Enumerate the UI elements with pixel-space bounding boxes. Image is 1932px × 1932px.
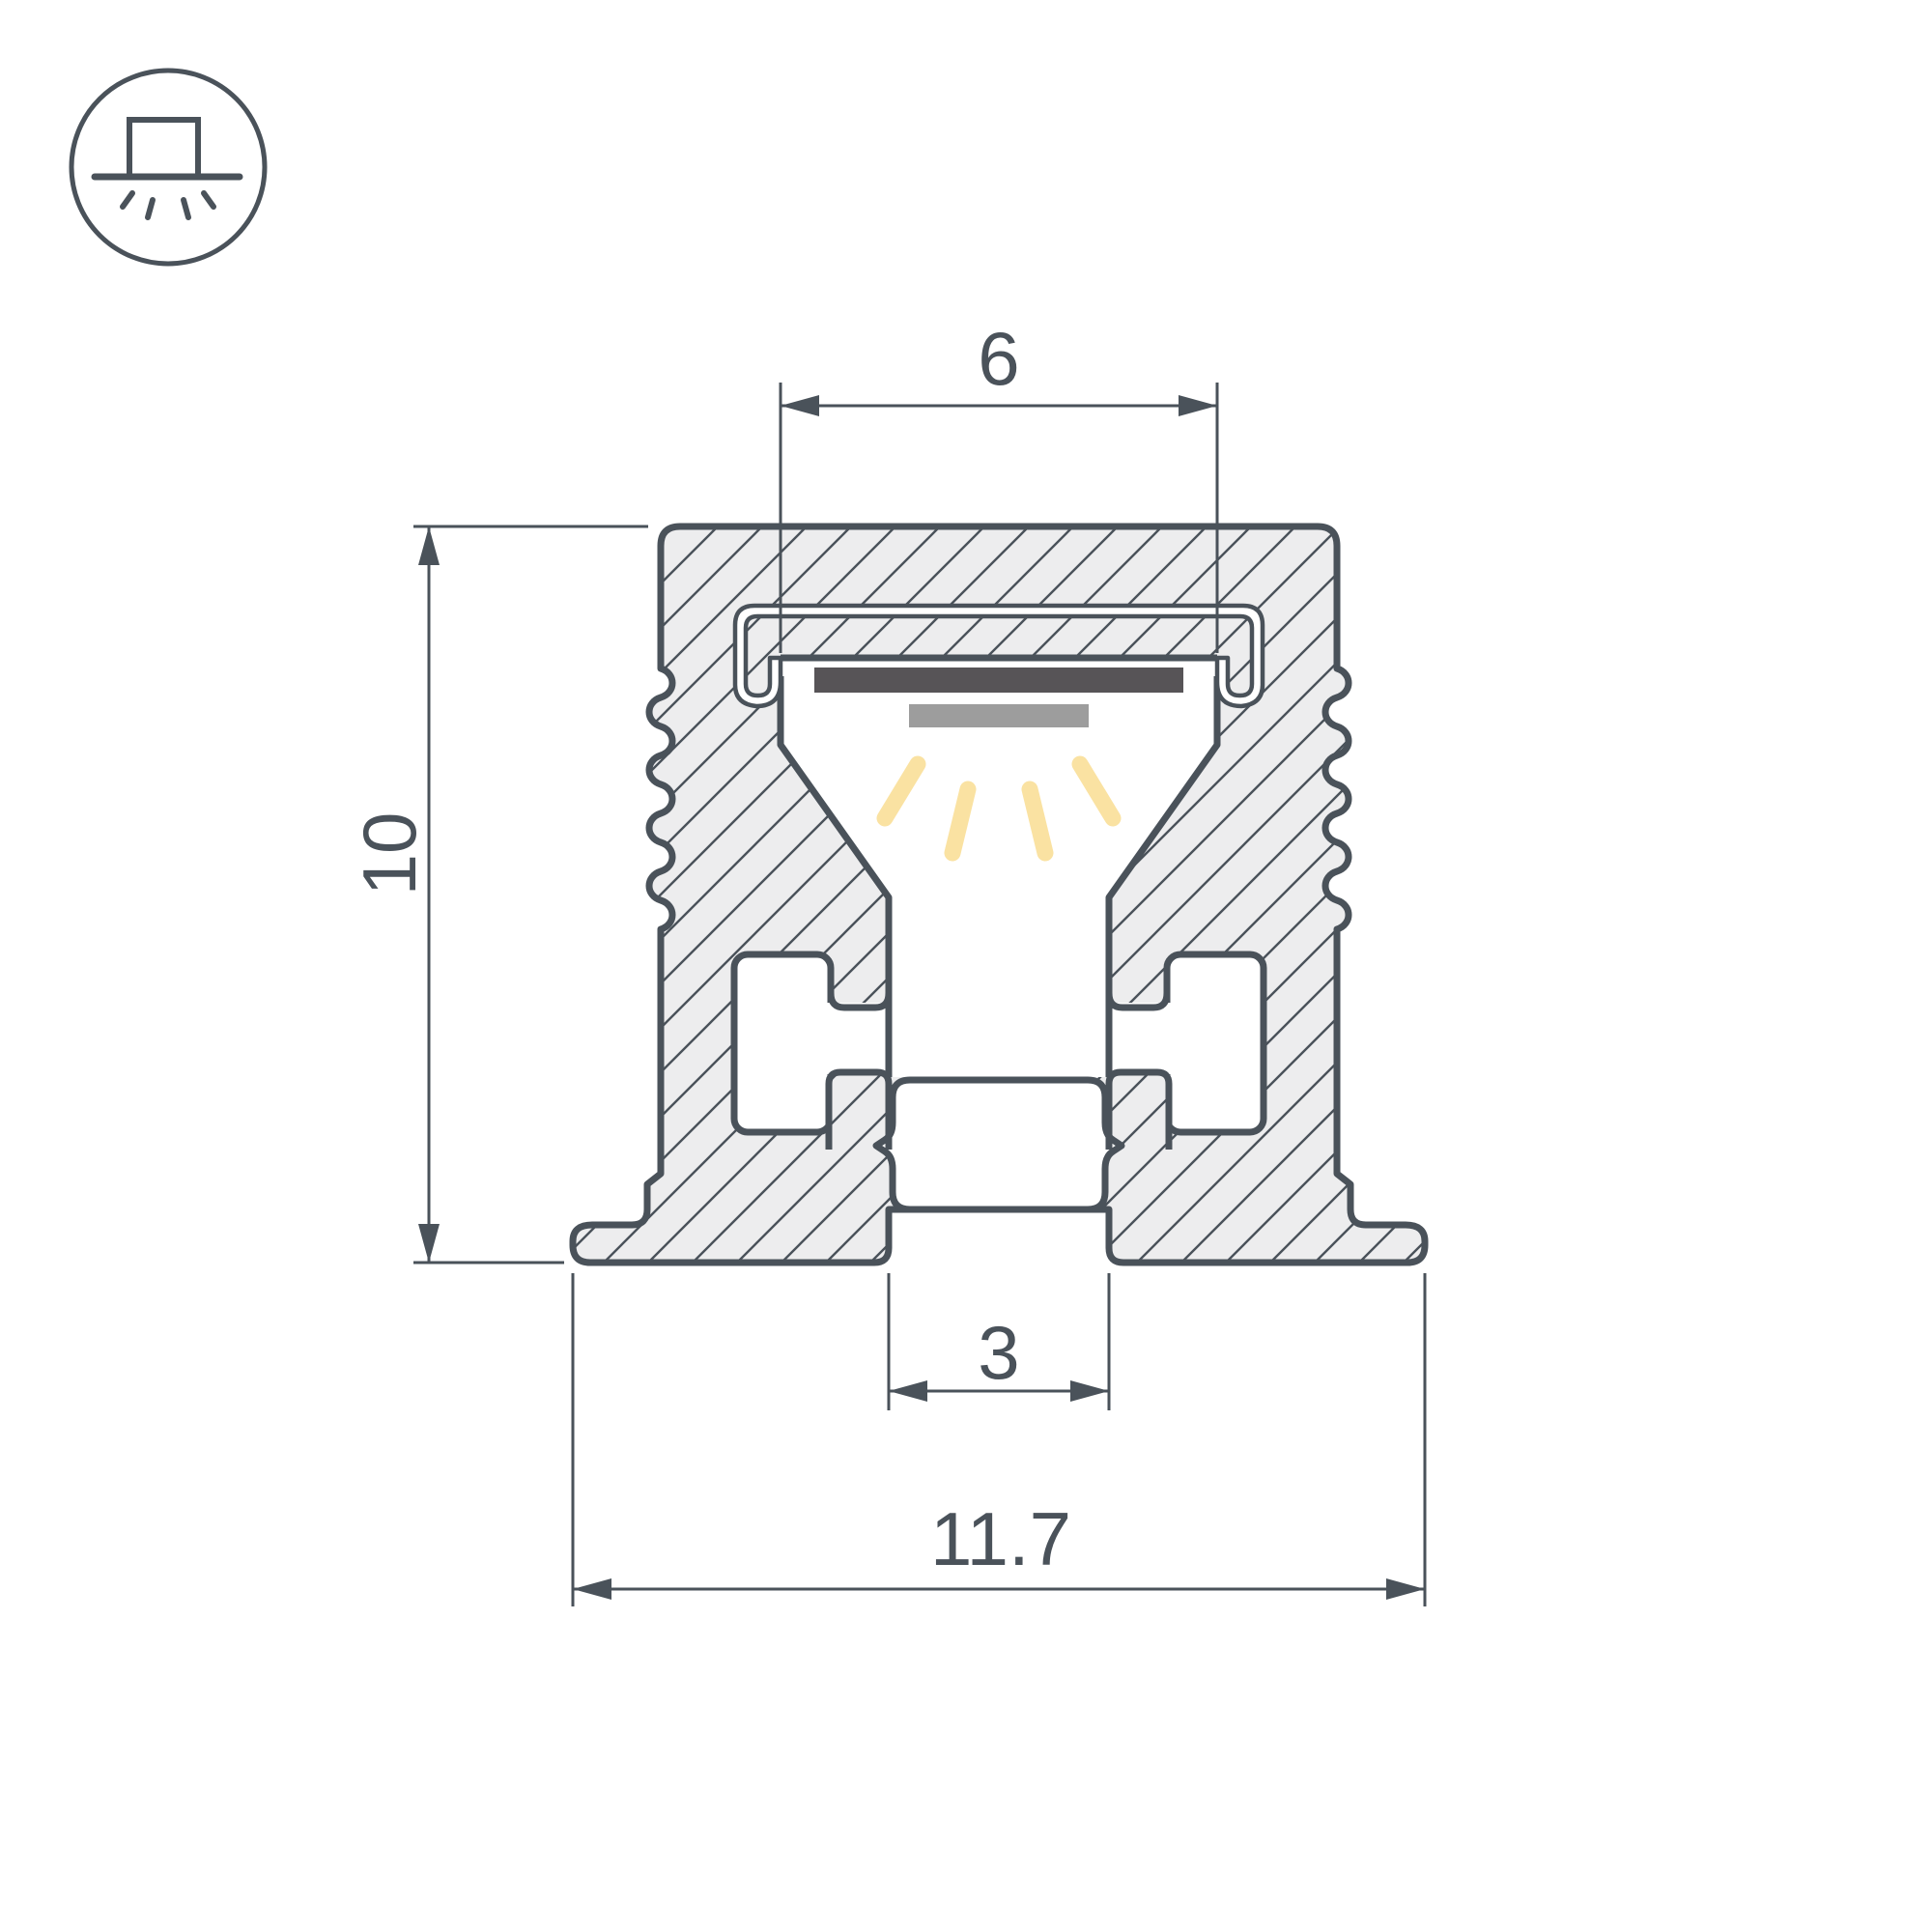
led-pcb-bar bbox=[909, 704, 1089, 727]
label-top-opening: 6 bbox=[978, 316, 1019, 401]
led-strip-bar bbox=[814, 668, 1183, 693]
finger-left bbox=[829, 1072, 889, 1150]
drawing-page: 6 10 3 11.7 bbox=[0, 0, 1932, 1932]
recessed-downlight-icon bbox=[71, 71, 265, 264]
label-total-width: 11.7 bbox=[930, 1496, 1071, 1581]
label-bottom-slot: 3 bbox=[978, 1310, 1019, 1395]
icon-fixture-box bbox=[129, 120, 198, 177]
profile-drawing: 6 10 3 11.7 bbox=[0, 0, 1932, 1932]
dimension-height bbox=[413, 526, 648, 1263]
finger-right bbox=[1109, 1072, 1169, 1150]
aluminum-body bbox=[573, 526, 1425, 1263]
side-hole-right bbox=[1167, 954, 1264, 1132]
cavity-connector-left bbox=[826, 1003, 894, 1074]
cavity-connector-right bbox=[1104, 1003, 1172, 1074]
screw-cavity bbox=[876, 1080, 1122, 1209]
side-hole-left bbox=[734, 954, 831, 1132]
label-height: 10 bbox=[347, 812, 432, 896]
